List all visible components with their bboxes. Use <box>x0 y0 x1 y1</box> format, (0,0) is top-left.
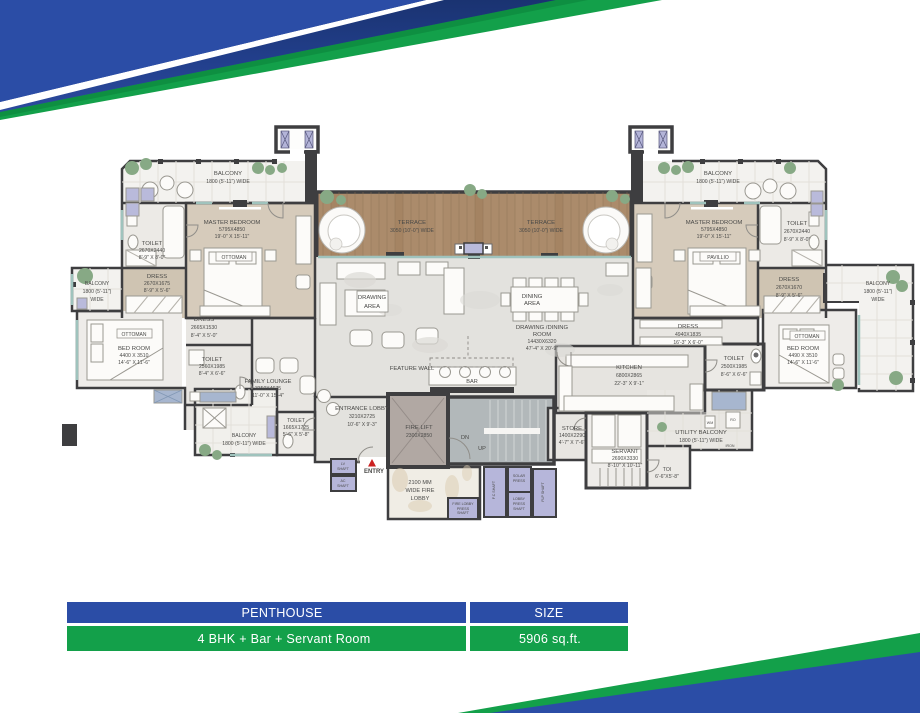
svg-text:OTTOMAN: OTTOMAN <box>122 332 147 338</box>
svg-text:SOLAR: SOLAR <box>513 474 526 478</box>
svg-text:6800X2865: 6800X2865 <box>616 373 642 379</box>
svg-text:WIDE: WIDE <box>871 297 885 303</box>
svg-text:2665X1530: 2665X1530 <box>191 325 217 331</box>
svg-text:DRESS: DRESS <box>147 274 167 280</box>
svg-text:14'-6" X 11'-6": 14'-6" X 11'-6" <box>787 360 819 366</box>
svg-text:11'-0" X 15'-4": 11'-0" X 15'-4" <box>252 393 284 399</box>
svg-text:SHAFT: SHAFT <box>513 507 526 511</box>
svg-text:1800 (5'-11") WIDE: 1800 (5'-11") WIDE <box>696 179 740 185</box>
svg-text:UP: UP <box>478 446 486 452</box>
svg-text:IRON: IRON <box>726 444 735 448</box>
svg-text:BALCONY: BALCONY <box>214 171 242 177</box>
svg-text:OTTOMAN: OTTOMAN <box>222 255 247 261</box>
svg-text:LV: LV <box>341 462 346 466</box>
svg-text:ROOM: ROOM <box>533 332 551 338</box>
svg-text:2300X2850: 2300X2850 <box>406 433 432 439</box>
svg-text:14430X6320: 14430X6320 <box>528 339 557 345</box>
svg-text:PAVILLIO: PAVILLIO <box>707 255 729 261</box>
svg-text:1800 (5'-11") WIDE: 1800 (5'-11") WIDE <box>679 438 723 444</box>
svg-text:MASTER BEDROOM: MASTER BEDROOM <box>686 220 743 226</box>
svg-text:PRESS: PRESS <box>513 479 526 483</box>
svg-text:FIRE LOBBY: FIRE LOBBY <box>452 502 474 506</box>
svg-text:1800 (5'-11") WIDE: 1800 (5'-11") WIDE <box>222 441 266 447</box>
svg-text:4'-7" X 7'-6": 4'-7" X 7'-6" <box>559 440 586 446</box>
svg-text:BAR: BAR <box>466 379 478 385</box>
svg-text:2690X3330: 2690X3330 <box>612 456 638 462</box>
svg-text:TERRACE: TERRACE <box>398 220 426 226</box>
svg-text:3050 (10'-0") WIDE: 3050 (10'-0") WIDE <box>519 228 563 234</box>
svg-text:DINING: DINING <box>522 294 543 300</box>
svg-text:UTILITY BALCONY: UTILITY BALCONY <box>675 430 727 436</box>
svg-text:SIZE: SIZE <box>534 606 563 620</box>
svg-text:8'-9" X 5'-6": 8'-9" X 5'-6" <box>776 293 803 299</box>
svg-text:1800 (5'-11"): 1800 (5'-11") <box>864 289 893 295</box>
svg-text:FEATURE WALL: FEATURE WALL <box>390 366 435 372</box>
svg-text:3210X2725: 3210X2725 <box>349 414 375 420</box>
svg-text:1665X1725: 1665X1725 <box>283 425 309 431</box>
svg-text:DRAWING /DINING: DRAWING /DINING <box>516 325 569 331</box>
svg-text:22'-3" X 9'-1": 22'-3" X 9'-1" <box>614 381 644 387</box>
svg-text:47'-4" X 20'-9": 47'-4" X 20'-9" <box>526 346 558 352</box>
svg-text:DRESS: DRESS <box>779 277 799 283</box>
svg-text:DRESS: DRESS <box>194 317 214 323</box>
svg-text:2670X2440: 2670X2440 <box>139 248 165 254</box>
svg-text:8'-10" X 10'-11": 8'-10" X 10'-11" <box>608 463 643 469</box>
svg-text:2560X1985: 2560X1985 <box>199 364 225 370</box>
svg-text:16'-3" X 6'-0": 16'-3" X 6'-0" <box>673 340 703 346</box>
svg-text:PENTHOUSE: PENTHOUSE <box>241 606 322 620</box>
svg-text:19'-0" X 15'-11": 19'-0" X 15'-11" <box>215 234 250 240</box>
svg-text:FLP SHAFT: FLP SHAFT <box>541 482 545 502</box>
svg-text:4 BHK + Bar + Servant Room: 4 BHK + Bar + Servant Room <box>198 632 371 646</box>
svg-text:4490 X 3510: 4490 X 3510 <box>789 353 818 359</box>
svg-text:RO: RO <box>730 418 736 422</box>
svg-text:3350X4675: 3350X4675 <box>255 386 281 392</box>
svg-text:1800 (5'-11"): 1800 (5'-11") <box>83 289 112 295</box>
svg-text:AREA: AREA <box>524 301 540 307</box>
svg-text:OTTOMAN: OTTOMAN <box>795 334 820 340</box>
svg-text:1400X2290: 1400X2290 <box>559 433 585 439</box>
svg-text:ENTRANCE LOBBY: ENTRANCE LOBBY <box>335 406 389 412</box>
svg-text:8'-9" X 5'-6": 8'-9" X 5'-6" <box>144 288 171 294</box>
svg-text:8'-9" X 8'-0": 8'-9" X 8'-0" <box>139 255 166 261</box>
svg-text:TOI: TOI <box>663 467 671 473</box>
svg-text:FIRE LIFT: FIRE LIFT <box>405 425 433 431</box>
svg-text:SERVANT: SERVANT <box>611 449 639 455</box>
svg-text:8'-4" X 6'-6": 8'-4" X 6'-6" <box>199 371 226 377</box>
svg-text:14'-6" X 11'-6": 14'-6" X 11'-6" <box>118 360 150 366</box>
svg-text:BALCONY: BALCONY <box>85 281 110 287</box>
svg-text:5906 sq.ft.: 5906 sq.ft. <box>519 632 581 646</box>
svg-text:TOILET: TOILET <box>202 357 223 363</box>
svg-text:STORE: STORE <box>562 426 582 432</box>
svg-text:TOILET: TOILET <box>724 356 745 362</box>
svg-text:FAMILY LOUNGE: FAMILY LOUNGE <box>245 379 292 385</box>
svg-text:4940X1835: 4940X1835 <box>675 332 701 338</box>
svg-text:LOBBY: LOBBY <box>411 496 430 502</box>
svg-text:KITCHEN: KITCHEN <box>616 365 642 371</box>
svg-text:2100 MM: 2100 MM <box>408 480 432 486</box>
svg-text:AC: AC <box>341 479 346 483</box>
svg-text:WIDE: WIDE <box>90 297 104 303</box>
svg-text:SHAFT: SHAFT <box>457 511 470 515</box>
svg-text:8'-6" X 6'-6": 8'-6" X 6'-6" <box>721 372 748 378</box>
svg-text:SHAFT: SHAFT <box>337 467 350 471</box>
svg-text:2670X2440: 2670X2440 <box>784 229 810 235</box>
svg-text:TOILET: TOILET <box>787 221 808 227</box>
svg-text:DRESS: DRESS <box>678 324 698 330</box>
svg-text:6'-6"X5'-8": 6'-6"X5'-8" <box>655 474 679 480</box>
svg-text:5795X4850: 5795X4850 <box>219 227 245 233</box>
svg-text:2500X1985: 2500X1985 <box>721 364 747 370</box>
svg-text:PRESS: PRESS <box>513 502 526 506</box>
svg-text:1800 (5'-11") WIDE: 1800 (5'-11") WIDE <box>206 179 250 185</box>
svg-text:LOBBY: LOBBY <box>513 497 526 501</box>
svg-text:3050 (10'-0") WIDE: 3050 (10'-0") WIDE <box>390 228 434 234</box>
svg-text:DRAWING: DRAWING <box>358 295 387 301</box>
svg-text:DN: DN <box>461 435 469 441</box>
svg-text:8'-4" X 5'-0": 8'-4" X 5'-0" <box>191 333 218 339</box>
svg-text:TOILET: TOILET <box>142 241 163 247</box>
svg-text:AREA: AREA <box>364 304 380 310</box>
svg-text:TERRACE: TERRACE <box>527 220 555 226</box>
svg-text:BALCONY: BALCONY <box>704 171 732 177</box>
svg-text:BALCONY: BALCONY <box>866 281 891 287</box>
svg-text:F.C SHAFT: F.C SHAFT <box>492 480 496 499</box>
svg-text:BED ROOM: BED ROOM <box>118 346 150 352</box>
svg-text:5'-6" X 5'-8": 5'-6" X 5'-8" <box>283 432 310 438</box>
svg-text:8'-9" X 8'-0": 8'-9" X 8'-0" <box>784 237 811 243</box>
svg-text:SHAFT: SHAFT <box>337 484 350 488</box>
svg-text:MASTER BEDROOM: MASTER BEDROOM <box>204 220 261 226</box>
svg-text:2670X1670: 2670X1670 <box>776 285 802 291</box>
svg-text:4400 X 3510: 4400 X 3510 <box>120 353 149 359</box>
svg-text:19'-0" X 15'-11": 19'-0" X 15'-11" <box>697 234 732 240</box>
svg-text:BALCONY: BALCONY <box>232 433 257 439</box>
svg-text:WIDE FIRE: WIDE FIRE <box>406 488 435 494</box>
svg-text:2670X1675: 2670X1675 <box>144 281 170 287</box>
svg-text:10'-6" X 9'-3": 10'-6" X 9'-3" <box>347 422 377 428</box>
svg-text:BED ROOM: BED ROOM <box>787 346 819 352</box>
svg-text:ENTRY: ENTRY <box>364 469 384 475</box>
svg-text:5795X4850: 5795X4850 <box>701 227 727 233</box>
svg-text:WM: WM <box>707 421 713 425</box>
svg-text:TOILET: TOILET <box>287 418 305 424</box>
